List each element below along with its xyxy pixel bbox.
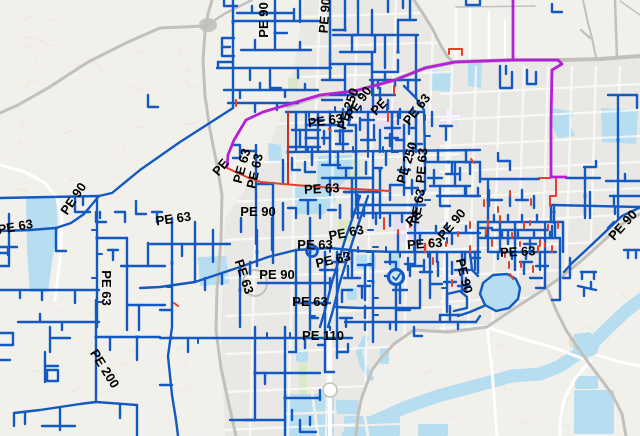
svg-text:PE 63: PE 63 (413, 147, 431, 184)
svg-text:PE 90: PE 90 (259, 267, 294, 282)
svg-text:PE 63: PE 63 (99, 270, 114, 305)
svg-text:PE 63: PE 63 (406, 235, 442, 252)
svg-text:PE 63: PE 63 (297, 237, 332, 252)
svg-text:PE 90: PE 90 (316, 0, 334, 34)
svg-text:PE 90: PE 90 (240, 204, 275, 219)
svg-text:PE 110: PE 110 (302, 328, 344, 343)
svg-text:PE 63: PE 63 (500, 243, 536, 260)
svg-text:PE 90: PE 90 (256, 2, 271, 37)
svg-text:PE 63: PE 63 (304, 180, 340, 197)
svg-text:PE 63: PE 63 (292, 294, 327, 309)
